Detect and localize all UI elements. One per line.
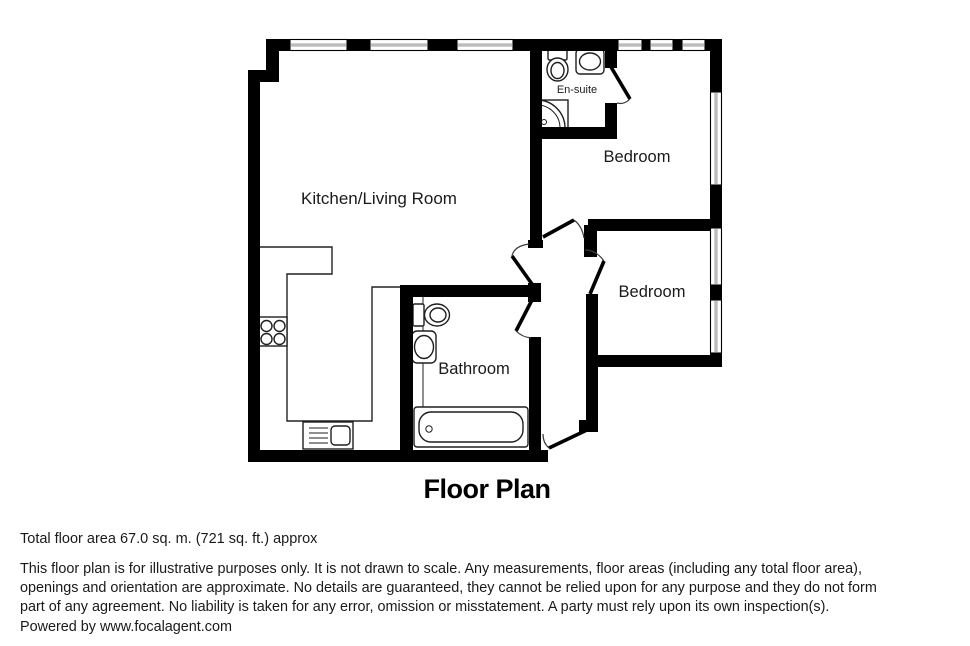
wall-bathroom-right-upper bbox=[528, 283, 541, 302]
room-label-bedroom2: Bedroom bbox=[619, 283, 686, 301]
bathroom-toilet bbox=[413, 304, 450, 326]
bathroom-sink bbox=[412, 331, 436, 363]
wall-bathroom-left bbox=[400, 285, 413, 462]
disclaimer: This floor plan is for illustrative purp… bbox=[20, 560, 877, 637]
room-label-ensuite: En-suite bbox=[557, 84, 597, 96]
kitchen-sink bbox=[303, 422, 353, 449]
wall-ensuite-right-top bbox=[605, 39, 617, 68]
door-entrance bbox=[543, 429, 589, 448]
window-top-5 bbox=[650, 40, 673, 51]
room-label-bedroom1: Bedroom bbox=[604, 148, 671, 166]
window-top-6 bbox=[682, 40, 705, 51]
window-right-bedroom2-upper bbox=[711, 228, 722, 285]
walls bbox=[248, 39, 722, 462]
door-bathroom bbox=[516, 300, 532, 338]
disclaimer-line: part of any agreement. No liability is t… bbox=[20, 598, 877, 617]
kitchen-hob bbox=[258, 317, 287, 346]
wall-left bbox=[248, 70, 260, 462]
door-bedroom1 bbox=[543, 220, 584, 238]
ensuite-toilet bbox=[547, 49, 568, 81]
wall-ensuite-right-low bbox=[605, 103, 617, 139]
wall-kitchen-divider-cap bbox=[528, 240, 543, 248]
disclaimer-line: openings and orientation are approximate… bbox=[20, 579, 877, 598]
wall-bedroom-divider bbox=[588, 219, 722, 231]
window-top-3 bbox=[457, 40, 513, 51]
wall-bathroom-top bbox=[400, 285, 541, 297]
floor-plan-title: Floor Plan bbox=[423, 474, 550, 504]
wall-ensuite-bottom bbox=[530, 127, 617, 139]
wall-kitchen-divider bbox=[530, 39, 542, 248]
disclaimer-line: This floor plan is for illustrative purp… bbox=[20, 560, 877, 579]
window-right-bedroom2-lower bbox=[711, 300, 722, 353]
wall-bedroom2-bottom bbox=[586, 355, 722, 367]
ensuite-sink bbox=[576, 49, 604, 74]
door-ensuite bbox=[611, 67, 630, 104]
door-kitchen-living bbox=[512, 244, 532, 284]
room-label-bathroom: Bathroom bbox=[438, 360, 510, 378]
wall-bathroom-right-lower bbox=[529, 337, 541, 462]
total-floor-area: Total floor area 67.0 sq. m. (721 sq. ft… bbox=[20, 531, 317, 547]
powered-by: Powered by www.focalagent.com bbox=[20, 618, 877, 637]
bathtub bbox=[414, 407, 528, 447]
window-right-bedroom1 bbox=[711, 92, 722, 185]
window-top-2 bbox=[370, 40, 428, 51]
window-top-4 bbox=[618, 40, 642, 51]
floor-plan-page: Kitchen/Living Room En-suite Bedroom Bed… bbox=[0, 0, 970, 646]
window-top-1 bbox=[290, 40, 347, 51]
wall-bottom bbox=[248, 450, 548, 462]
room-label-kitchen-living: Kitchen/Living Room bbox=[301, 189, 457, 208]
floor-plan: Kitchen/Living Room En-suite Bedroom Bed… bbox=[0, 0, 970, 646]
